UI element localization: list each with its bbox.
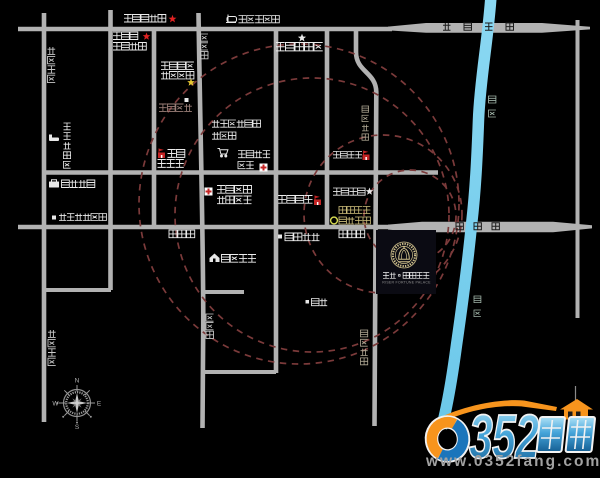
svg-text:N: N	[75, 378, 80, 385]
svg-text:S: S	[75, 424, 80, 431]
svg-text:RISER FORTUNE PALACE: RISER FORTUNE PALACE	[382, 281, 431, 285]
svg-text:www.0352fang.com: www.0352fang.com	[425, 453, 600, 470]
svg-text:W: W	[52, 401, 59, 408]
svg-text:E: E	[97, 401, 102, 408]
